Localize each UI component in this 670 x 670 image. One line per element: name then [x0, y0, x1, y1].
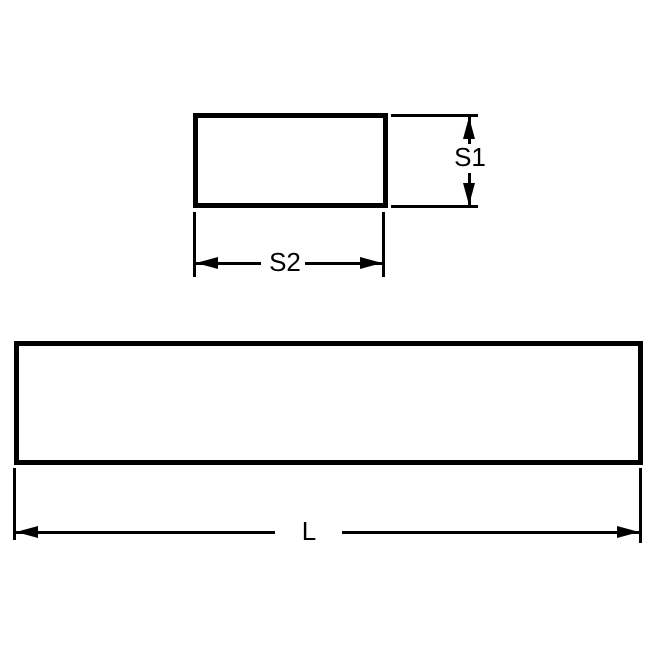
technical-drawing-canvas: S1 S2 L — [0, 0, 670, 670]
l-dimension-line-left — [16, 531, 275, 534]
l-arrow-left-icon — [16, 526, 38, 538]
l-dimension-line-right — [342, 531, 639, 534]
l-extension-line-right — [639, 468, 642, 543]
side-view: L — [0, 0, 670, 670]
l-dimension-label: L — [285, 518, 333, 544]
side-view-rectangle — [14, 341, 643, 465]
l-arrow-right-icon — [617, 526, 639, 538]
